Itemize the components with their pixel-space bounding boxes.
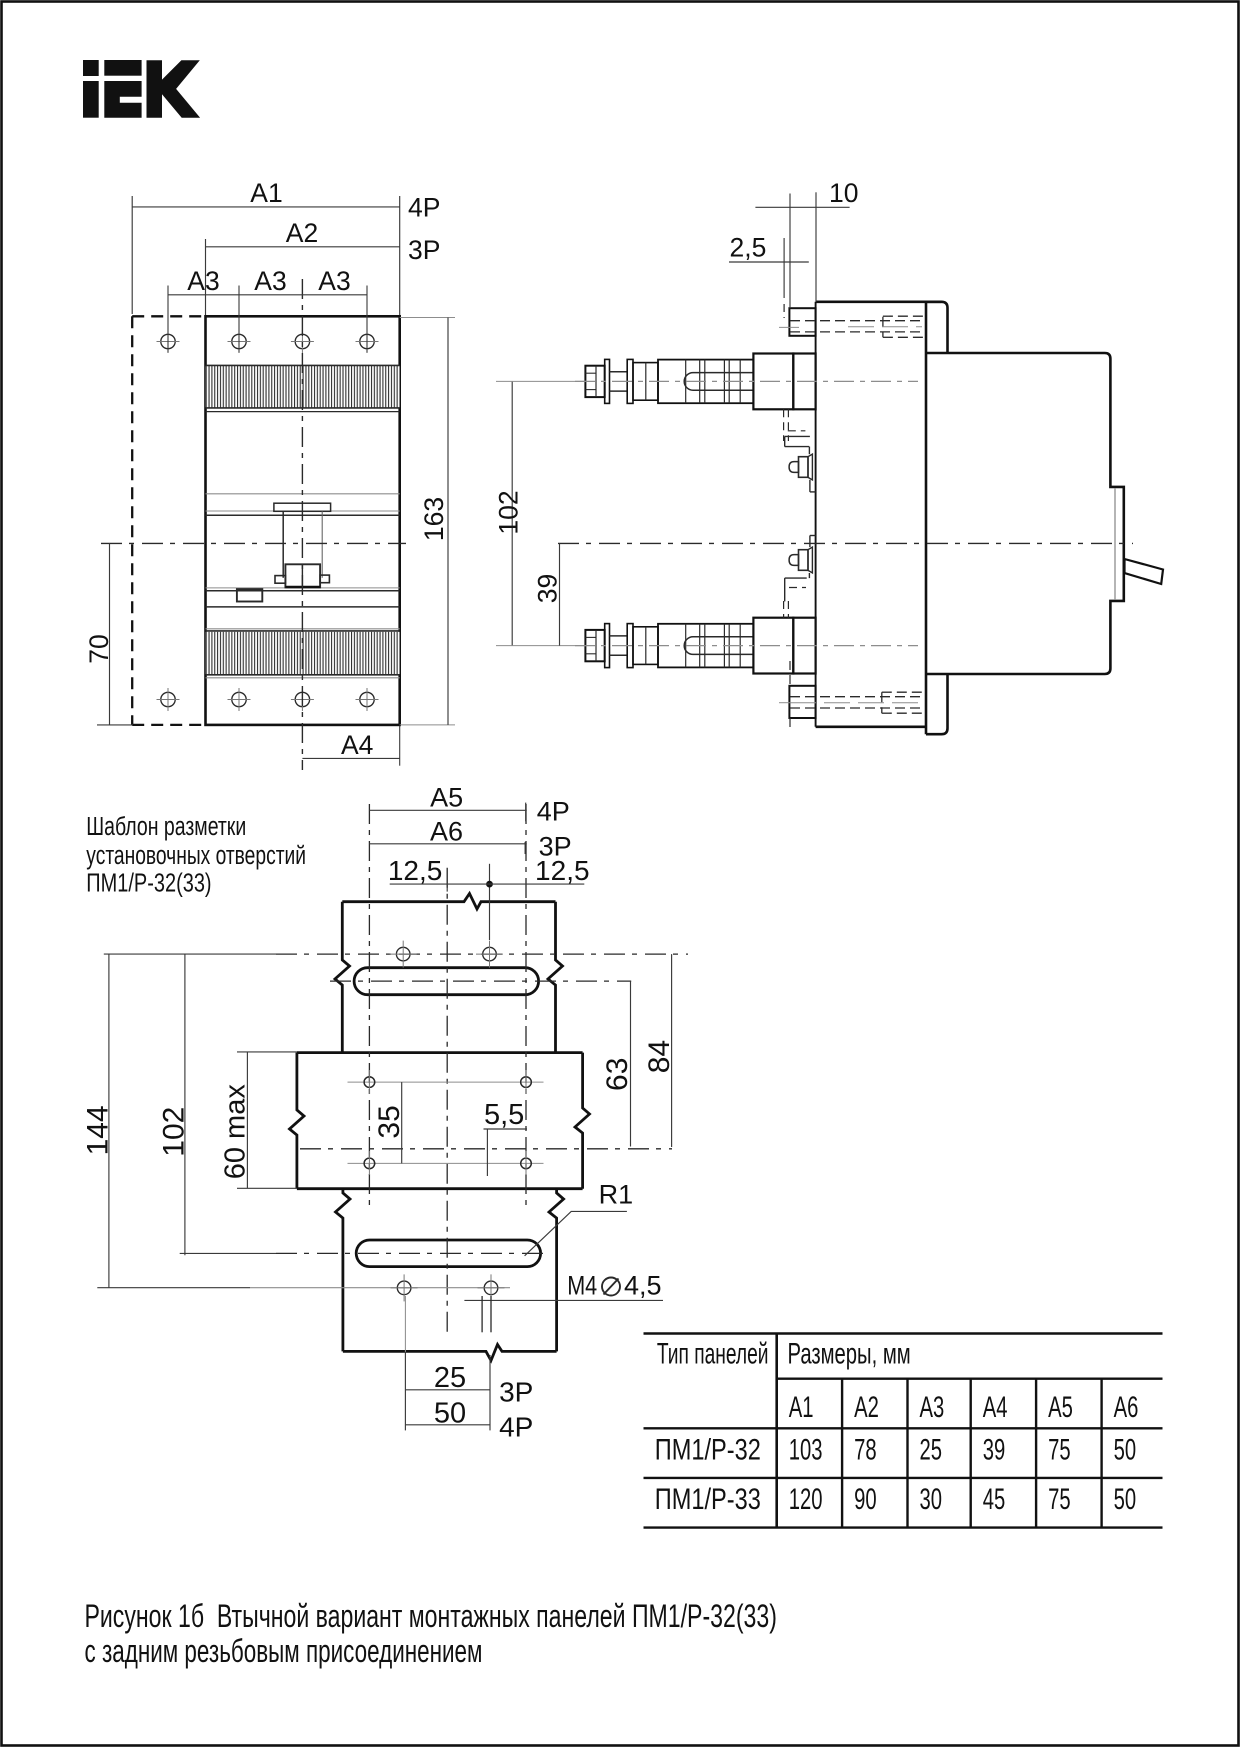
svg-text:75: 75 — [1048, 1483, 1071, 1516]
svg-text:103: 103 — [789, 1434, 823, 1467]
svg-text:Шаблон разметки: Шаблон разметки — [86, 811, 246, 840]
svg-text:102: 102 — [494, 490, 524, 534]
svg-text:144: 144 — [82, 1105, 115, 1155]
svg-text:A5: A5 — [430, 782, 463, 812]
svg-text:90: 90 — [854, 1483, 877, 1516]
svg-text:A2: A2 — [286, 218, 318, 248]
svg-text:3P: 3P — [499, 1377, 533, 1408]
svg-text:39: 39 — [533, 574, 563, 603]
svg-text:R1: R1 — [599, 1180, 634, 1210]
svg-text:ПМ1/Р-33: ПМ1/Р-33 — [655, 1482, 761, 1515]
svg-text:A4: A4 — [341, 730, 373, 760]
svg-text:А2: А2 — [854, 1391, 879, 1424]
svg-text:ПМ1/Р-32: ПМ1/Р-32 — [655, 1433, 761, 1466]
svg-text:A3: A3 — [187, 266, 219, 296]
svg-text:35: 35 — [373, 1105, 406, 1138]
svg-text:Размеры, мм: Размеры, мм — [788, 1338, 911, 1371]
svg-text:45: 45 — [983, 1483, 1006, 1516]
svg-text:25: 25 — [920, 1434, 943, 1467]
svg-text:50: 50 — [1114, 1434, 1137, 1467]
svg-text:A3: A3 — [318, 266, 350, 296]
svg-text:установочных отверстий: установочных отверстий — [86, 840, 306, 870]
svg-text:А4: А4 — [983, 1391, 1008, 1424]
svg-text:50: 50 — [1114, 1483, 1137, 1516]
svg-text:ПМ1/Р-32(33): ПМ1/Р-32(33) — [86, 868, 211, 897]
svg-text:4P: 4P — [537, 797, 570, 827]
svg-text:Рисунок 1б Втычной вариант мо: Рисунок 1б Втычной вариант монтажных пан… — [85, 1598, 777, 1634]
svg-text:10: 10 — [829, 178, 858, 208]
svg-text:3P: 3P — [408, 235, 440, 265]
svg-text:M4: M4 — [567, 1271, 597, 1301]
svg-text:50: 50 — [434, 1397, 466, 1429]
svg-text:A1: A1 — [250, 178, 282, 208]
svg-text:25: 25 — [434, 1362, 466, 1394]
svg-text:120: 120 — [789, 1483, 823, 1516]
svg-text:39: 39 — [983, 1434, 1006, 1467]
svg-text:А1: А1 — [789, 1391, 814, 1424]
svg-text:4P: 4P — [408, 193, 440, 223]
svg-text:2,5: 2,5 — [730, 233, 767, 263]
svg-text:60 max: 60 max — [220, 1084, 252, 1180]
svg-text:А5: А5 — [1048, 1391, 1073, 1424]
svg-text:12,5: 12,5 — [535, 855, 590, 886]
svg-text:84: 84 — [643, 1040, 676, 1073]
svg-text:78: 78 — [854, 1434, 877, 1467]
svg-text:12,5: 12,5 — [388, 855, 443, 886]
svg-text:4,5: 4,5 — [624, 1271, 662, 1301]
svg-text:с задним резьбовым присоединен: с задним резьбовым присоединением — [85, 1633, 483, 1669]
svg-text:A6: A6 — [430, 817, 463, 847]
svg-text:102: 102 — [157, 1107, 190, 1157]
svg-text:75: 75 — [1048, 1434, 1071, 1467]
svg-text:А3: А3 — [920, 1391, 945, 1424]
svg-text:70: 70 — [84, 634, 114, 663]
svg-text:5,5: 5,5 — [484, 1099, 524, 1131]
svg-text:4P: 4P — [499, 1412, 533, 1443]
svg-text:63: 63 — [601, 1058, 634, 1091]
svg-text:A3: A3 — [254, 266, 286, 296]
svg-text:163: 163 — [419, 497, 449, 541]
svg-text:А6: А6 — [1114, 1391, 1139, 1424]
svg-text:30: 30 — [920, 1483, 943, 1516]
svg-text:Тип панелей: Тип панелей — [657, 1337, 769, 1370]
